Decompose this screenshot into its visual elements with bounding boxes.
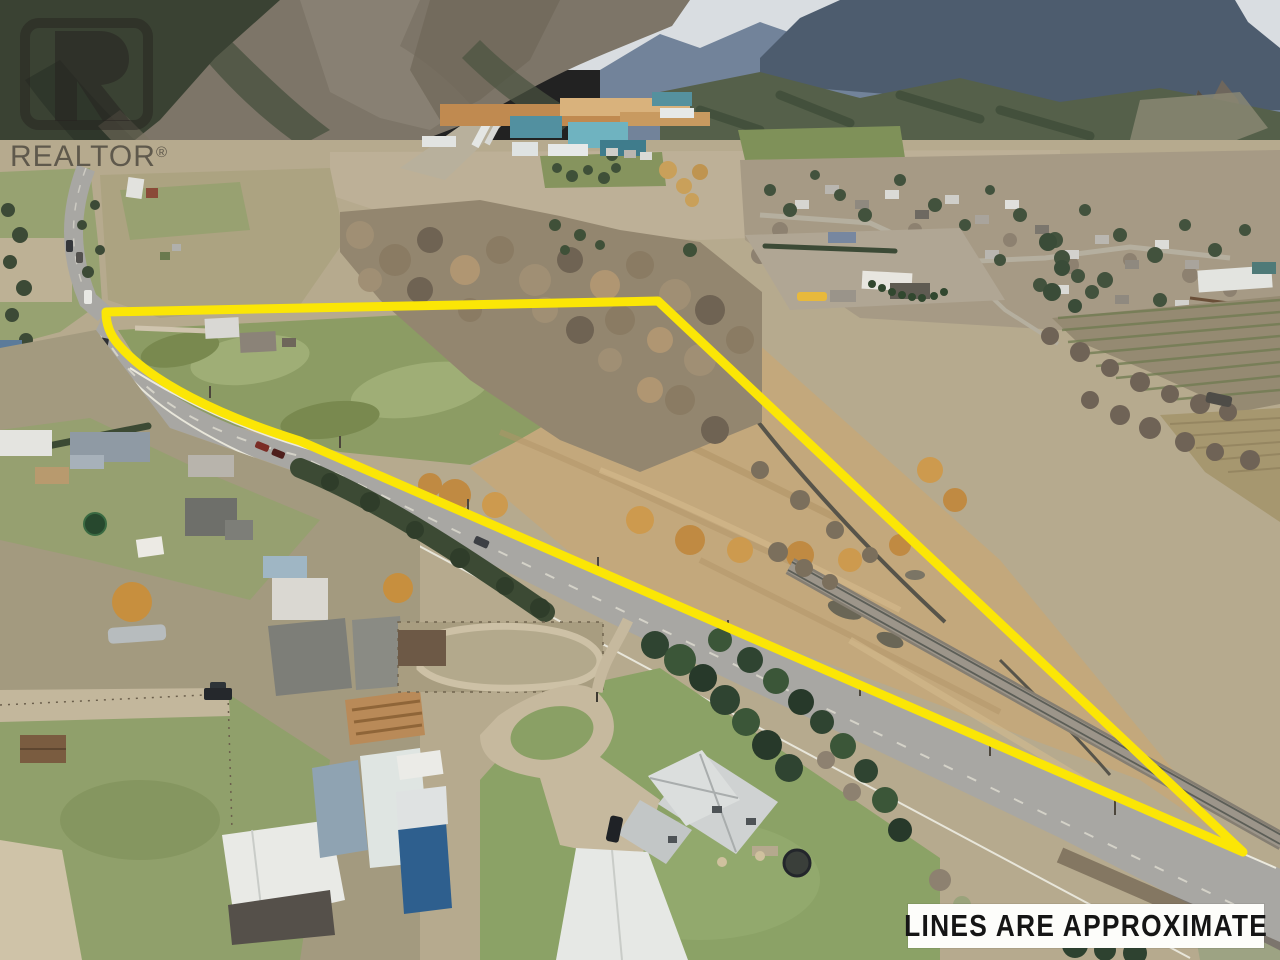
trampoline-2 [784,850,810,876]
trampoline [84,513,106,535]
school-bus [797,292,827,301]
listing-photo: REALTOR® LINES ARE APPROXIMATE [0,0,1280,960]
disclaimer-text: LINES ARE APPROXIMATE [904,908,1268,944]
aerial-photo [0,0,1280,960]
neighbour-farm [745,228,1005,310]
blue-shop [398,822,452,914]
disclaimer-banner: LINES ARE APPROXIMATE [908,904,1264,948]
